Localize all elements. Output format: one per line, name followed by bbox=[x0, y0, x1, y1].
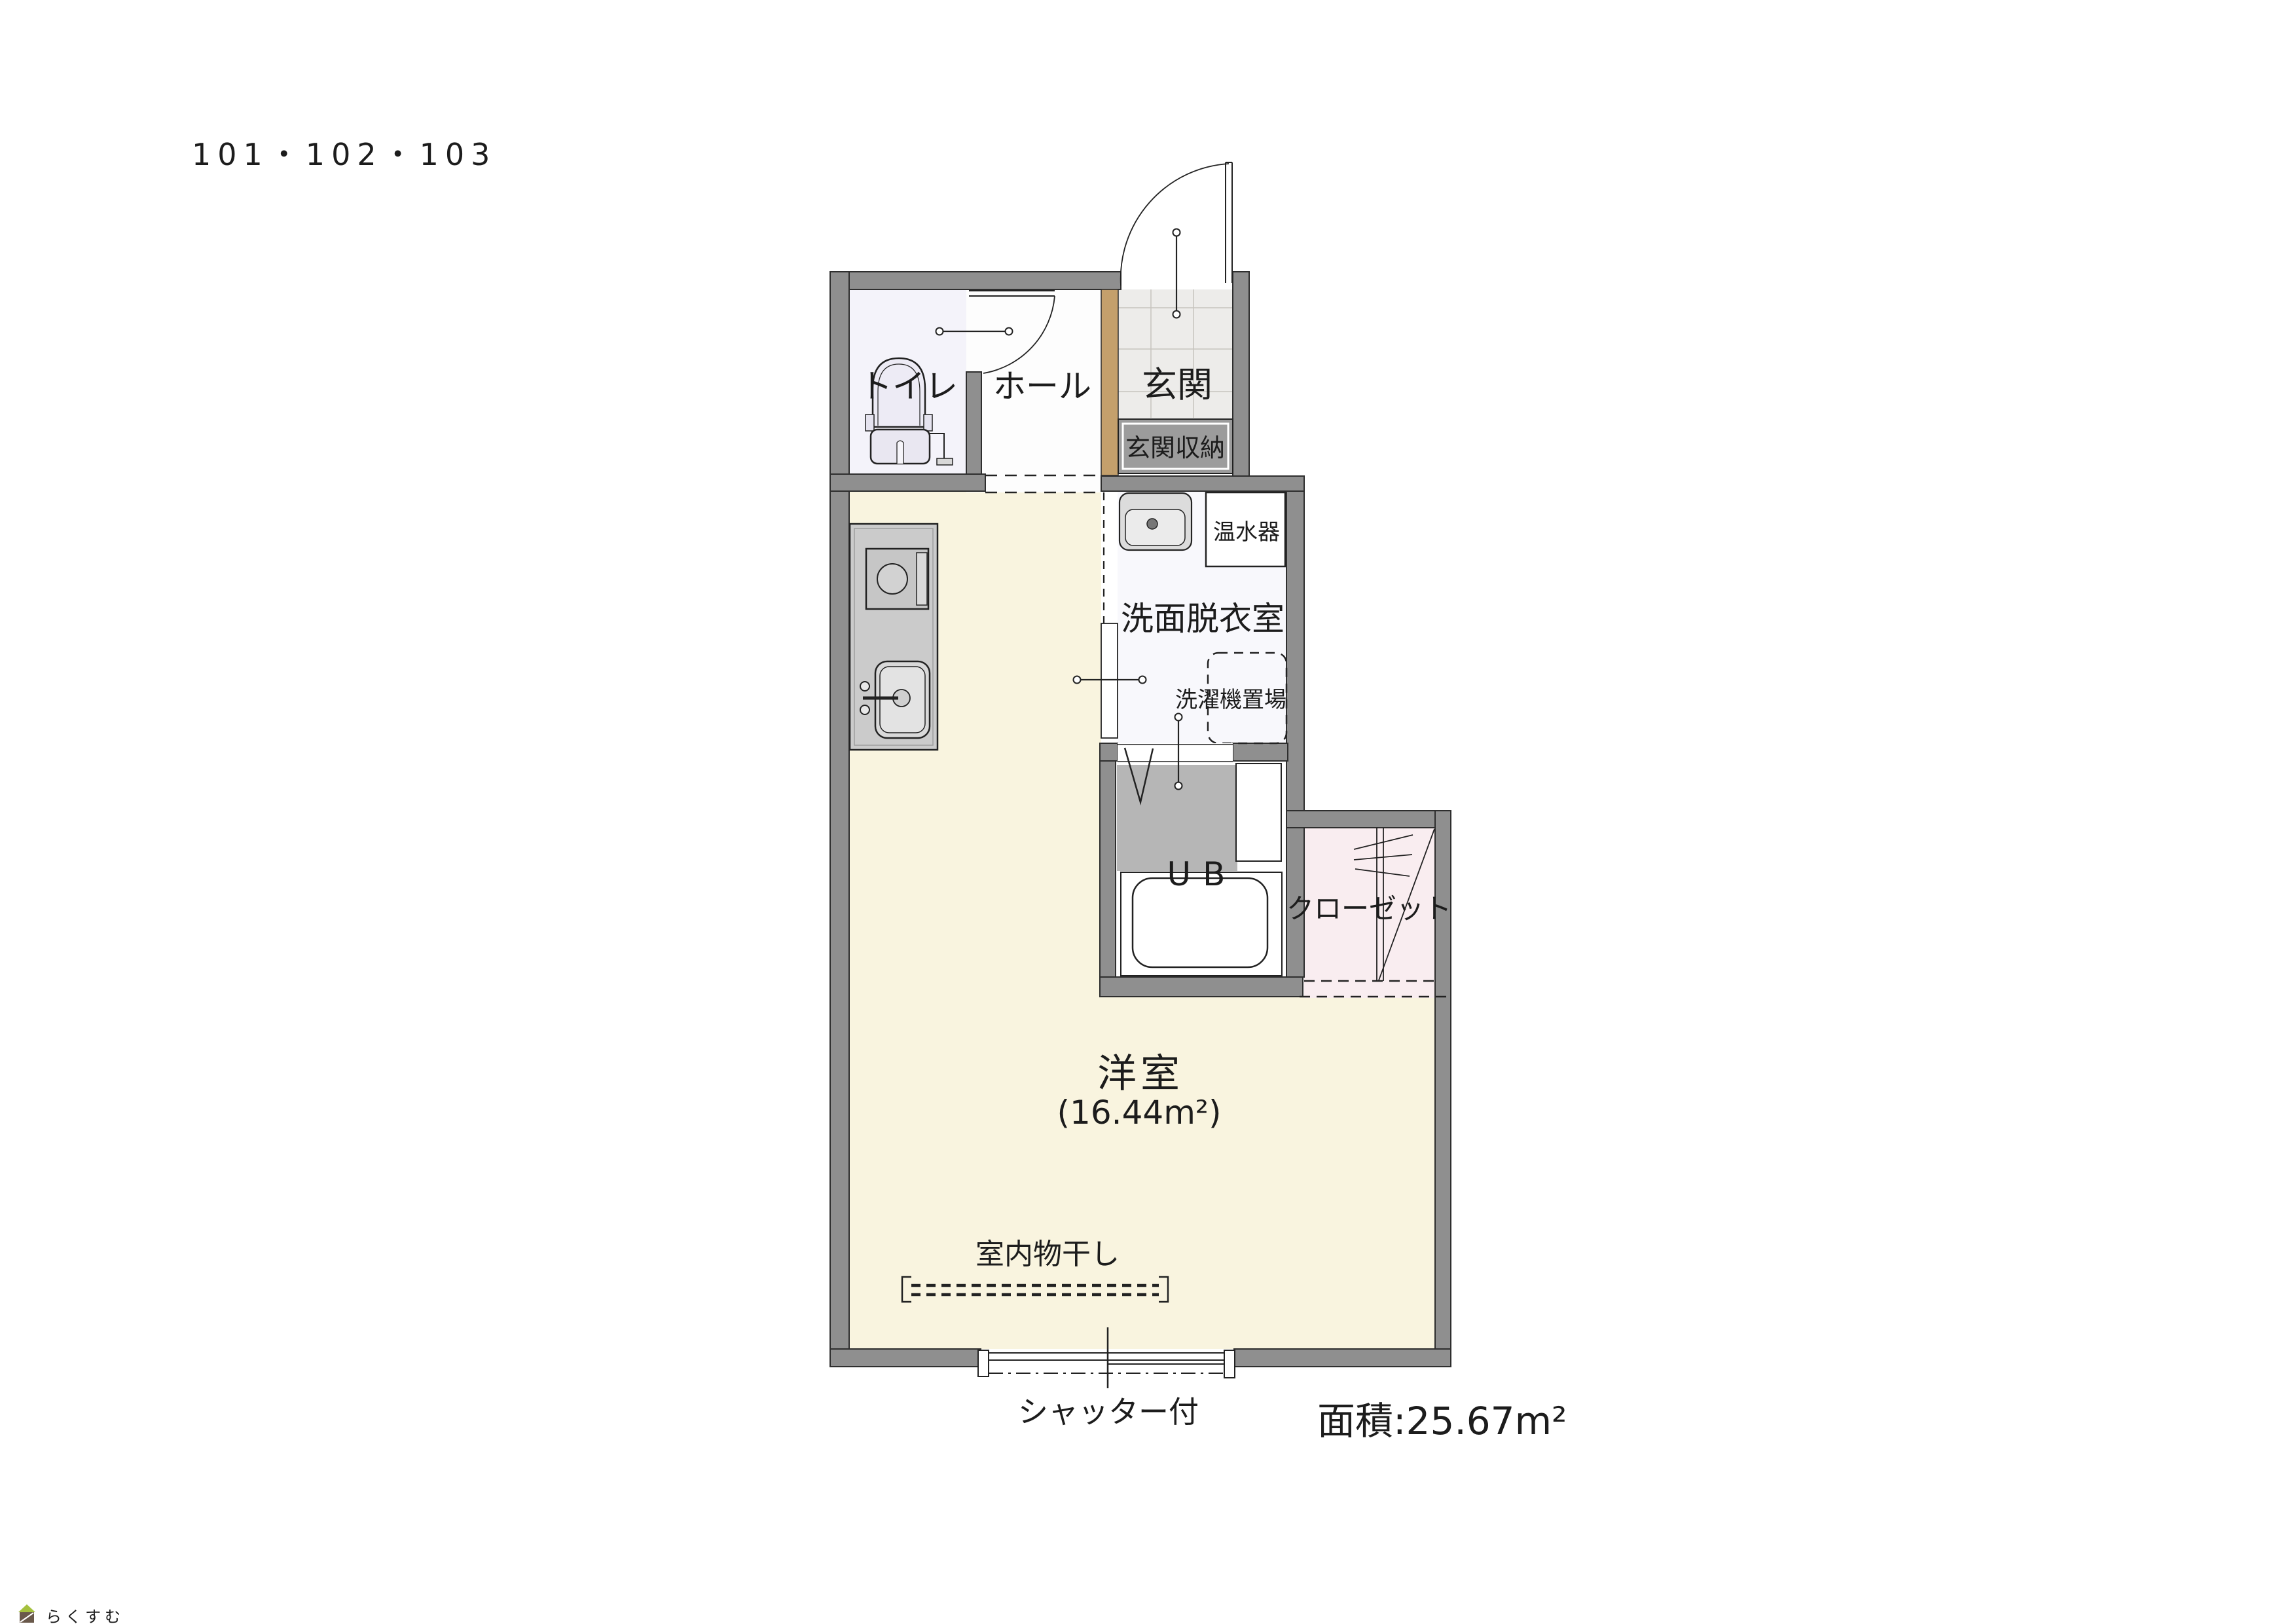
label-closet: クローゼット bbox=[1286, 893, 1451, 925]
wall-ub-divider-right bbox=[1233, 743, 1288, 761]
kitchen-icon bbox=[850, 524, 938, 750]
label-main-room-area: (16.44m²) bbox=[1057, 1094, 1222, 1132]
label-washroom: 洗面脱衣室 bbox=[1121, 600, 1285, 638]
wall-washroom-top bbox=[1101, 476, 1304, 491]
grill-icon bbox=[917, 553, 927, 605]
sink-faucet-icon bbox=[1147, 519, 1157, 529]
wall-toilet-hall-stub bbox=[966, 372, 981, 474]
wall-closet-top bbox=[1286, 811, 1451, 828]
label-water-heater: 温水器 bbox=[1213, 519, 1280, 545]
washroom-door bbox=[1101, 492, 1118, 738]
label-unit-bath: UB bbox=[1167, 855, 1237, 893]
main-room-floor-right bbox=[1100, 997, 1435, 1349]
wall-toilet-bottom bbox=[830, 474, 985, 491]
label-total-area: 面積:25.67m² bbox=[1317, 1399, 1567, 1443]
wall-bottom-right bbox=[1234, 1349, 1451, 1367]
ub-door-threshold bbox=[1118, 743, 1233, 763]
wall-entrance-right bbox=[1233, 272, 1249, 476]
label-main-room: 洋室 bbox=[1097, 1051, 1184, 1097]
page-title: 101・102・103 bbox=[192, 137, 496, 172]
label-entrance-storage: 玄関収納 bbox=[1125, 434, 1225, 462]
label-entrance: 玄関 bbox=[1142, 364, 1212, 405]
wall-top bbox=[830, 272, 1121, 289]
wall-ub-divider-left bbox=[1100, 743, 1118, 761]
wall-ub-bottom bbox=[1100, 977, 1303, 997]
label-toilet: トイレ bbox=[860, 367, 958, 405]
label-washer-space: 洗濯機置場 bbox=[1175, 687, 1286, 713]
washroom-sink-icon bbox=[1120, 493, 1192, 550]
burner-icon bbox=[877, 564, 907, 594]
wall-bottom-left bbox=[830, 1349, 981, 1367]
label-hall: ホール bbox=[993, 367, 1091, 405]
hall-entrance-divider bbox=[1101, 289, 1118, 475]
label-shutter: シャッター付 bbox=[1018, 1394, 1199, 1430]
wall-ub-west bbox=[1100, 761, 1116, 997]
floorplan-page: 101・102・103 トイレ ホール 玄関 玄関収納 温水器 洗面脱衣室 洗濯… bbox=[0, 0, 2296, 1624]
wall-washroom-right bbox=[1286, 491, 1304, 811]
label-indoor-drying: 室内物干し bbox=[975, 1238, 1120, 1271]
ub-counter bbox=[1236, 764, 1281, 861]
wall-left bbox=[830, 272, 849, 1367]
house-logo-icon bbox=[18, 1604, 35, 1623]
floorplan-drawing: 101・102・103 トイレ ホール 玄関 玄関収納 温水器 洗面脱衣室 洗濯… bbox=[0, 0, 2296, 1624]
logo-text: らくすむ bbox=[46, 1608, 124, 1624]
